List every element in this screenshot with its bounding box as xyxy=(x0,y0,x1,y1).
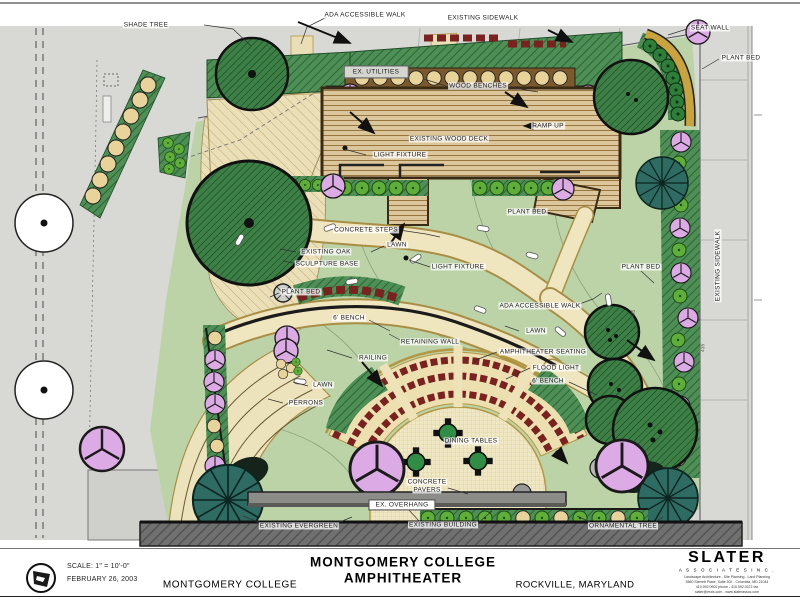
label-lawn-east: LAWN xyxy=(525,327,547,334)
evergreen-tree xyxy=(636,157,688,209)
label-amphitheater-seating: AMPHITHEATER SEATING xyxy=(499,348,587,355)
label-perrons: PERRONS xyxy=(288,399,324,406)
label-concrete-steps: CONCRETE STEPS xyxy=(333,226,399,233)
sheet-title-line2: AMPHITHEATER xyxy=(344,571,462,586)
label-existing-building: EXISTING BUILDING xyxy=(408,521,478,528)
label-railing: RAILING xyxy=(358,354,388,361)
label-ex-overhang: EX. OVERHANG xyxy=(368,499,435,510)
label-bench-upper: 6' BENCH xyxy=(332,314,366,321)
label-existing-wood-deck: EXISTING WOOD DECK xyxy=(409,135,489,142)
label-existing-evergreen: EXISTING EVERGREEN xyxy=(259,522,339,529)
label-existing-sidewalk-east: EXISTING SIDEWALK xyxy=(714,230,721,303)
label-concrete: CONCRETE xyxy=(407,478,448,485)
scale-note: SCALE: 1" = 10'-0" xyxy=(67,563,130,570)
label-ex-utilities: EX. UTILITIES xyxy=(344,65,409,78)
ornamental-tree xyxy=(350,442,404,496)
label-existing-sidewalk-top: EXISTING SIDEWALK xyxy=(447,14,520,21)
site-plan-svg xyxy=(0,0,800,548)
title-block: SCALE: 1" = 10'-0" FEBRUARY 26, 2003 MON… xyxy=(0,548,800,600)
label-plant-bed-ne: PLANT BED xyxy=(721,54,762,61)
ornamental-tree xyxy=(596,440,648,492)
label-seat-wall: SEAT WALL xyxy=(690,24,730,31)
label-flood-light: FLOOD LIGHT xyxy=(532,364,581,371)
label-plant-bed-east: PLANT BED xyxy=(621,263,662,270)
firm-info-line: 410.992.0900 phone - 410.992.0372 fax xyxy=(696,585,758,589)
label-ada-walk-mid: ADA ACCESSIBLE WALK xyxy=(499,302,582,309)
firm-logo-icon xyxy=(24,561,58,595)
sheet: SHADE TREE ADA ACCESSIBLE WALK EXISTING … xyxy=(0,0,800,600)
client-name: MONTGOMERY COLLEGE xyxy=(163,580,297,591)
label-light-fixture-deck: LIGHT FIXTURE xyxy=(373,151,428,158)
firm-info-line: slater@erols.com - www.slaterassoc.com xyxy=(695,590,759,594)
label-plant-bed-west: PLANT BED xyxy=(281,288,322,295)
label-lawn-west: LAWN xyxy=(312,381,334,388)
label-ornamental-tree: ORNAMENTAL TREE xyxy=(588,522,658,529)
site-plan: SHADE TREE ADA ACCESSIBLE WALK EXISTING … xyxy=(0,0,800,548)
firm-name: SLATER xyxy=(688,549,766,567)
label-bench-lower: 6' BENCH xyxy=(531,377,565,384)
sheet-border-bottom xyxy=(0,596,800,597)
sheet-title-line1: MONTGOMERY COLLEGE xyxy=(310,555,496,570)
label-retaining-wall: RETAINING WALL xyxy=(400,338,460,345)
light-fixture xyxy=(404,256,409,261)
street-tree xyxy=(15,194,73,252)
label-existing-oak: EXISTING OAK xyxy=(300,248,351,255)
label-ramp-up: RAMP UP xyxy=(531,122,565,129)
firm-info-line: Landscape Architecture - Site Planning -… xyxy=(684,575,770,579)
ornamental-tree xyxy=(80,427,124,471)
label-ada-walk-top: ADA ACCESSIBLE WALK xyxy=(324,11,407,18)
contour-label: 435 xyxy=(701,343,707,354)
shade-tree-canopy xyxy=(594,60,668,134)
firm-info-line: 5560 Sterrett Place, Suite 302 - Columbi… xyxy=(686,580,769,584)
label-plant-bed-mid: PLANT BED xyxy=(507,208,548,215)
label-light-fixture-walk: LIGHT FIXTURE xyxy=(431,263,486,270)
project-location: ROCKVILLE, MARYLAND xyxy=(516,580,635,591)
label-lawn-upper: LAWN xyxy=(386,241,408,248)
label-pavers: PAVERS xyxy=(412,486,441,493)
label-shade-tree: SHADE TREE xyxy=(123,21,169,28)
label-dining-tables: DINING TABLES xyxy=(444,437,499,444)
label-wood-benches: WOOD BENCHES xyxy=(448,82,508,89)
firm-subtitle: A S S O C I A T E S I N C . xyxy=(679,568,775,573)
label-sculpture-base: SCULPTURE BASE xyxy=(295,260,360,267)
date-note: FEBRUARY 26, 2003 xyxy=(67,576,137,583)
existing-oak xyxy=(187,161,311,285)
street-tree xyxy=(15,361,73,419)
